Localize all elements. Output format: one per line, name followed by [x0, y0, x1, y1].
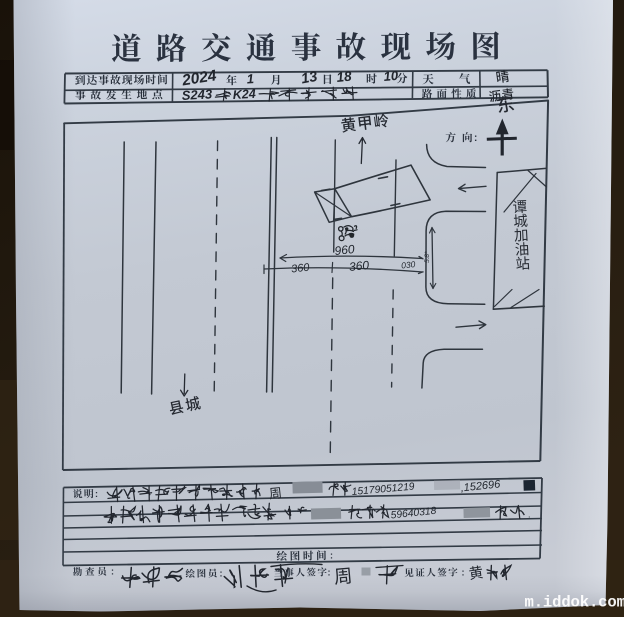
svg-text::: :	[330, 551, 333, 561]
svg-text:10: 10	[383, 68, 399, 84]
svg-text:360: 360	[291, 262, 311, 276]
svg-text:960: 960	[334, 242, 356, 258]
svg-text::: :	[474, 133, 477, 144]
svg-text:13: 13	[300, 69, 319, 88]
svg-text::: :	[220, 569, 223, 579]
svg-text::: :	[462, 568, 465, 578]
svg-text:18: 18	[336, 68, 353, 85]
svg-text::: :	[95, 489, 98, 499]
svg-text::: :	[328, 568, 331, 578]
svg-text:m.iddok.com: m.iddok.com	[525, 593, 624, 611]
svg-text:S243: S243	[181, 86, 213, 103]
svg-text:.: .	[528, 510, 531, 520]
svg-text:360: 360	[348, 258, 370, 274]
svg-text:5.8*: 5.8*	[424, 251, 431, 263]
svg-text:1: 1	[246, 71, 254, 86]
svg-text::: :	[111, 567, 114, 577]
svg-text:K24: K24	[232, 87, 256, 102]
svg-text:030: 030	[401, 259, 416, 270]
